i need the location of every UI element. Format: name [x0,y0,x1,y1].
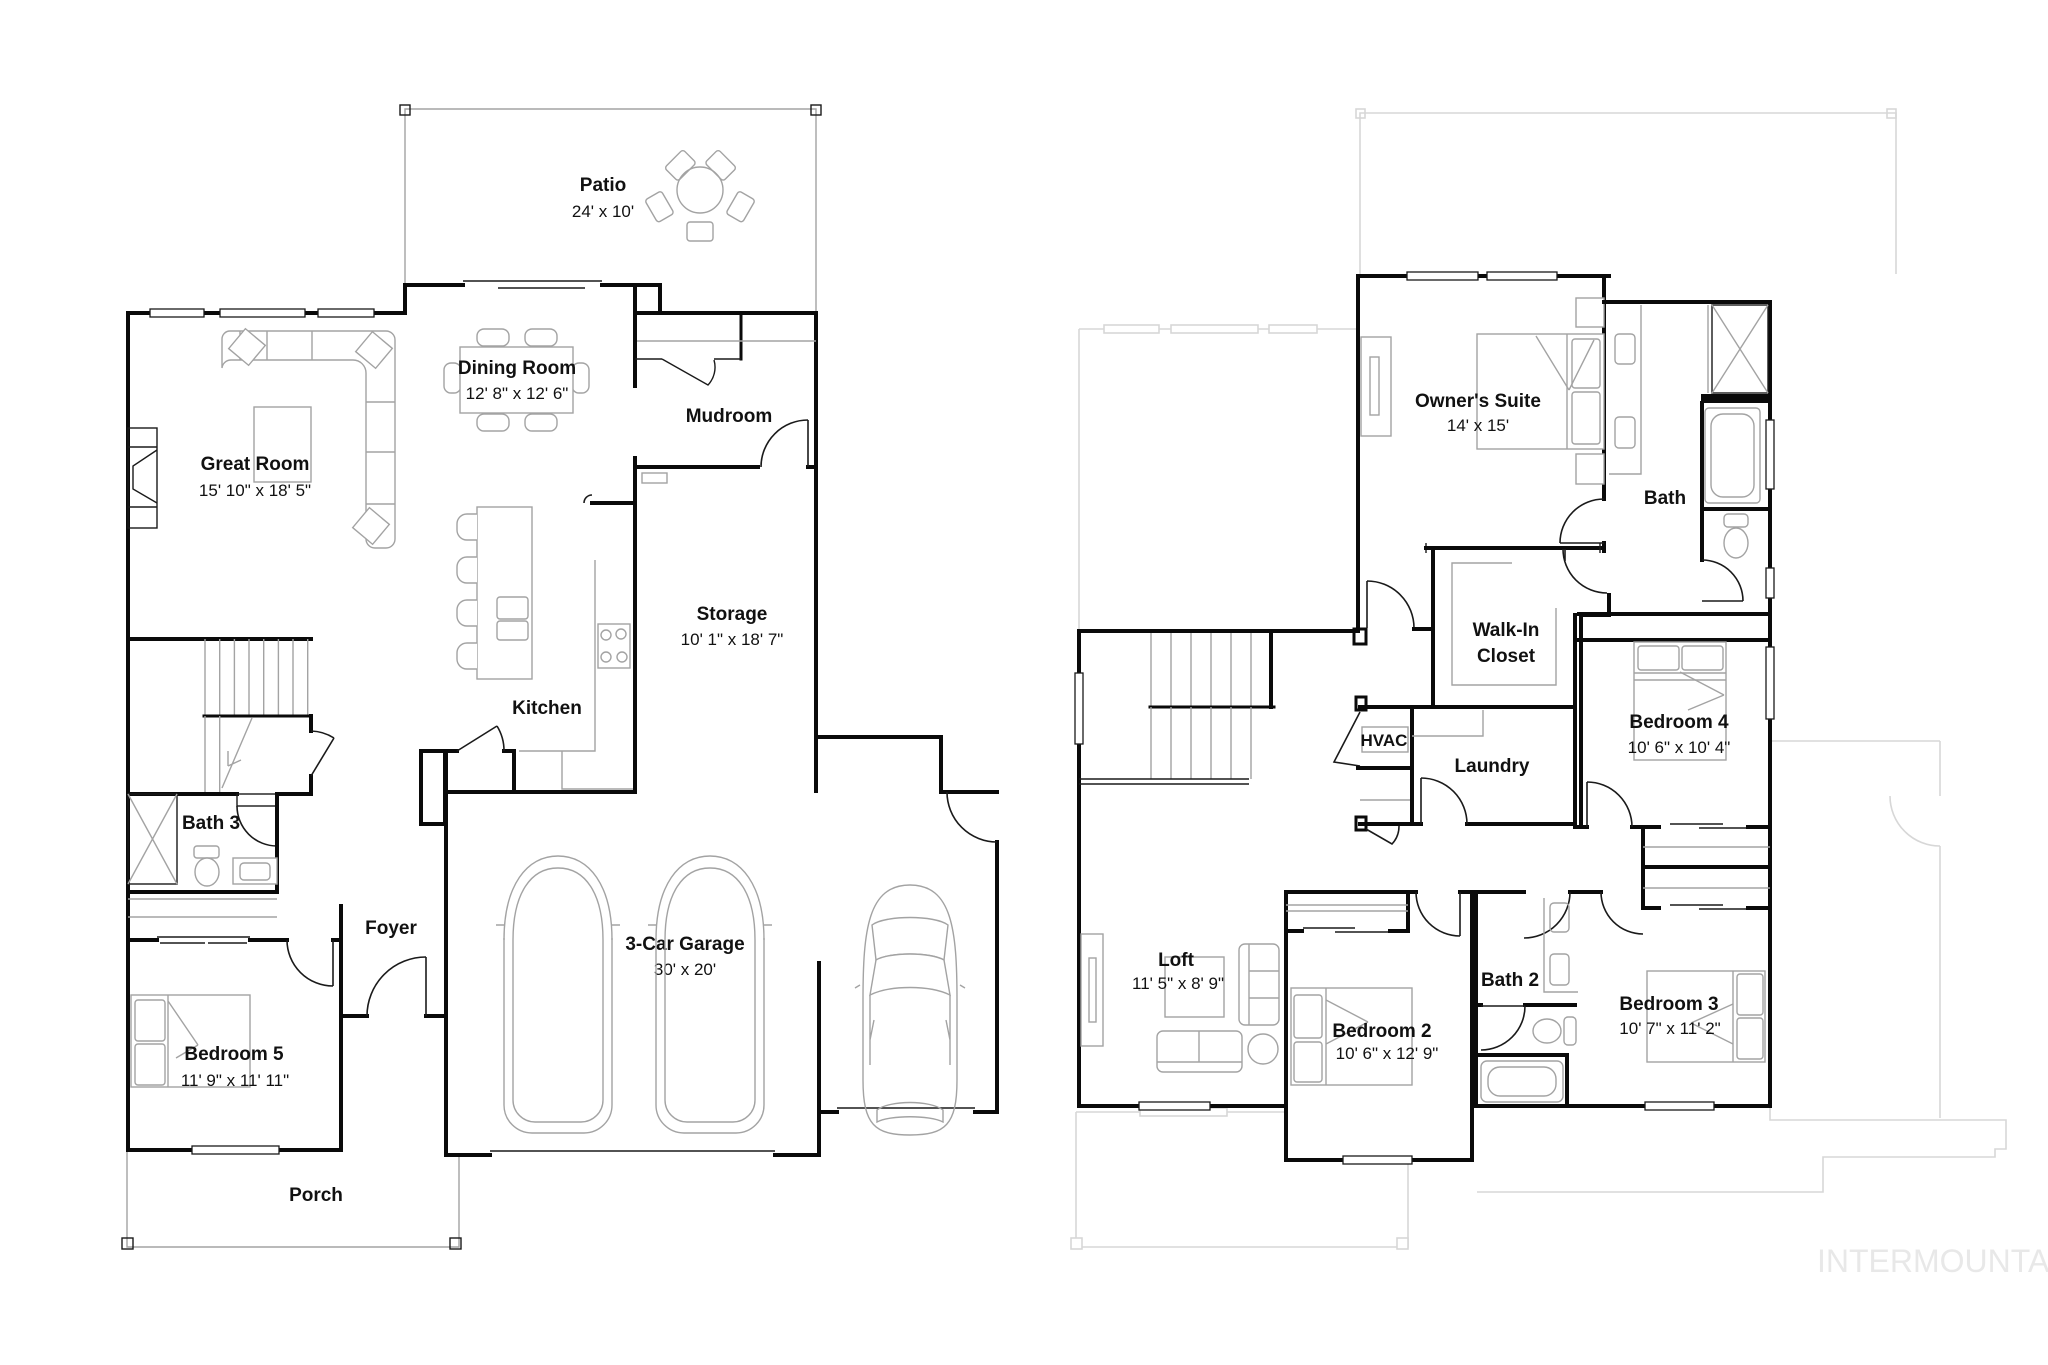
svg-text:Laundry: Laundry [1455,756,1530,777]
svg-text:Foyer: Foyer [365,918,417,939]
svg-text:12' 8" x 12' 6": 12' 8" x 12' 6" [466,384,569,403]
svg-text:10' 6" x 10' 4": 10' 6" x 10' 4" [1628,738,1731,757]
svg-text:10' 6" x 12' 9": 10' 6" x 12' 9" [1336,1044,1439,1063]
svg-text:24' x 10': 24' x 10' [572,202,634,221]
svg-text:30' x 20': 30' x 20' [654,960,716,979]
svg-text:Kitchen: Kitchen [512,698,582,719]
svg-text:14' x 15': 14' x 15' [1447,416,1509,435]
svg-text:Bedroom 3: Bedroom 3 [1619,994,1718,1015]
svg-text:Loft: Loft [1158,950,1195,971]
svg-text:3-Car Garage: 3-Car Garage [625,934,744,955]
svg-text:Closet: Closet [1477,646,1536,667]
svg-text:Owner's Suite: Owner's Suite [1415,391,1541,412]
svg-text:Mudroom: Mudroom [686,406,773,427]
svg-text:Storage: Storage [697,604,768,625]
svg-text:INTERMOUNTAIN: INTERMOUNTAIN [1817,1243,2048,1279]
svg-text:Patio: Patio [580,175,626,196]
svg-text:Dining Room: Dining Room [458,358,576,379]
svg-text:Bedroom 4: Bedroom 4 [1629,712,1729,733]
svg-text:Bath: Bath [1644,488,1686,509]
svg-text:Bedroom 5: Bedroom 5 [184,1044,284,1065]
svg-text:Bath 2: Bath 2 [1481,970,1539,991]
svg-text:10' 1" x 18' 7": 10' 1" x 18' 7" [681,630,784,649]
svg-text:Great Room: Great Room [201,454,310,475]
svg-text:Bath 3: Bath 3 [182,813,240,834]
svg-text:10' 7" x 11' 2": 10' 7" x 11' 2" [1619,1019,1720,1038]
svg-text:11' 5" x 8' 9": 11' 5" x 8' 9" [1132,974,1224,993]
svg-text:15' 10" x 18' 5": 15' 10" x 18' 5" [199,481,311,500]
svg-text:HVAC: HVAC [1361,731,1408,750]
svg-text:Walk-In: Walk-In [1473,620,1540,641]
svg-text:Bedroom 2: Bedroom 2 [1332,1021,1431,1042]
svg-text:Porch: Porch [289,1185,343,1206]
svg-text:11' 9" x 11' 11": 11' 9" x 11' 11" [181,1071,289,1090]
